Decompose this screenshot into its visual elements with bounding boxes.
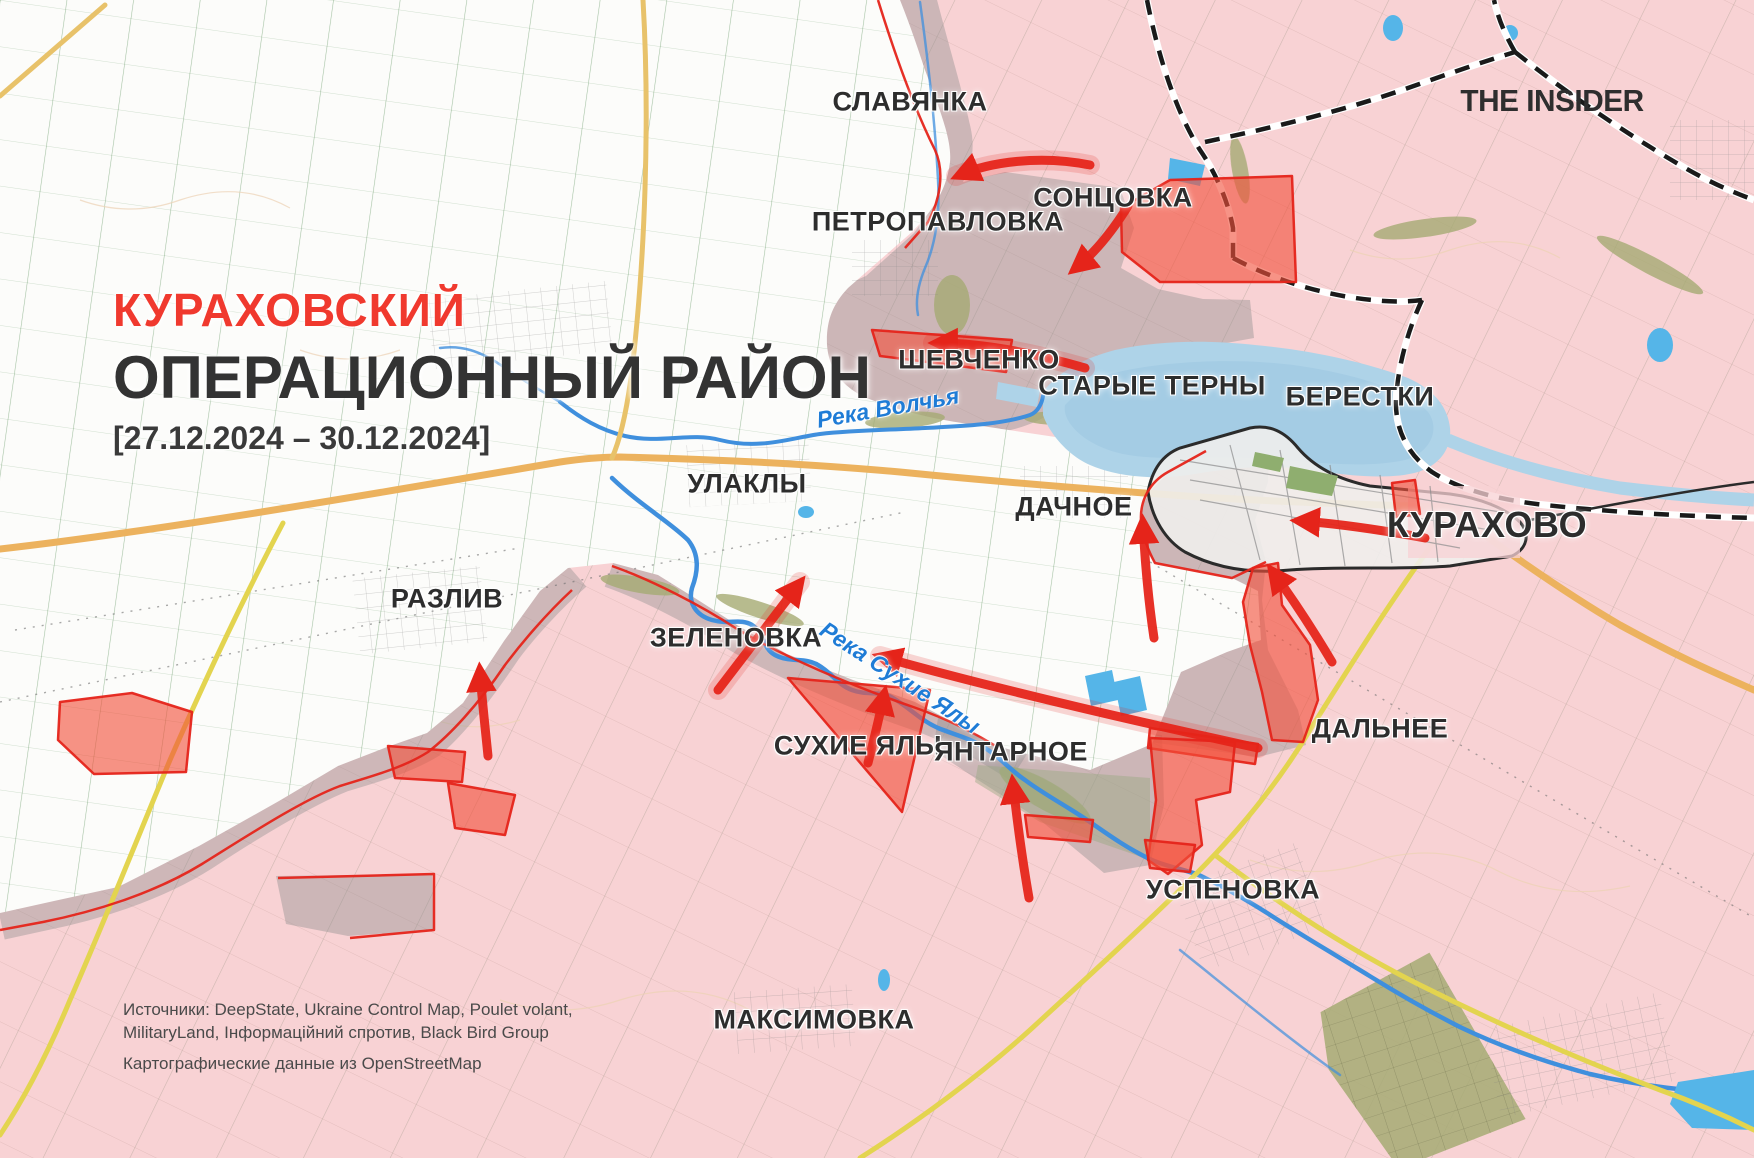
label-starye-terny: СТАРЫЕ ТЕРНЫ xyxy=(1038,371,1266,402)
sources-line3: Картографические данные из OpenStreetMap xyxy=(123,1052,573,1075)
label-shevchenko: ШЕВЧЕНКО xyxy=(898,345,1060,376)
sources-line2: MilitaryLand, Інформаційний спротив, Bla… xyxy=(123,1021,573,1044)
label-dalnee: ДАЛЬНЕЕ xyxy=(1312,714,1448,745)
sources-line1: Источники: DeepState, Ukraine Control Ma… xyxy=(123,998,573,1021)
label-uspenovka: УСПЕНОВКА xyxy=(1146,875,1320,906)
map-title-line1: КУРАХОВСКИЙ xyxy=(113,283,871,337)
map-canvas: КУРАХОВСКИЙ ОПЕРАЦИОННЫЙ РАЙОН [27.12.20… xyxy=(0,0,1754,1158)
the-insider-logo: THE INSIDER xyxy=(1460,83,1643,119)
label-berestki: БЕРЕСТКИ xyxy=(1286,382,1435,413)
label-petropavlovka: ПЕТРОПАВЛОВКА xyxy=(812,207,1064,238)
label-sukhie-yaly: СУХИЕ ЯЛЫ xyxy=(774,731,942,762)
label-slavyanka: СЛАВЯНКА xyxy=(833,87,988,118)
map-graphic xyxy=(0,0,1754,1158)
label-ulakly: УЛАКЛЫ xyxy=(687,469,806,500)
advance-west-sliver xyxy=(388,746,465,782)
label-dachnoe: ДАЧНОЕ xyxy=(1015,492,1132,523)
label-kurakhovo: КУРАХОВО xyxy=(1387,504,1587,546)
label-maksimovka: МАКСИМОВКА xyxy=(714,1005,915,1036)
map-title-line2: ОПЕРАЦИОННЫЙ РАЙОН xyxy=(113,343,871,412)
map-date-range: [27.12.2024 – 30.12.2024] xyxy=(113,420,871,457)
sources-note: Источники: DeepState, Ukraine Control Ma… xyxy=(123,998,573,1075)
label-zelenovka: ЗЕЛЕНОВКА xyxy=(650,623,822,654)
map-title-block: КУРАХОВСКИЙ ОПЕРАЦИОННЫЙ РАЙОН [27.12.20… xyxy=(113,283,871,457)
label-sontsovka: СОНЦОВКА xyxy=(1033,183,1193,214)
label-razliv: РАЗЛИВ xyxy=(391,584,503,615)
label-yantarnoe: ЯНТАРНОЕ xyxy=(934,737,1088,768)
